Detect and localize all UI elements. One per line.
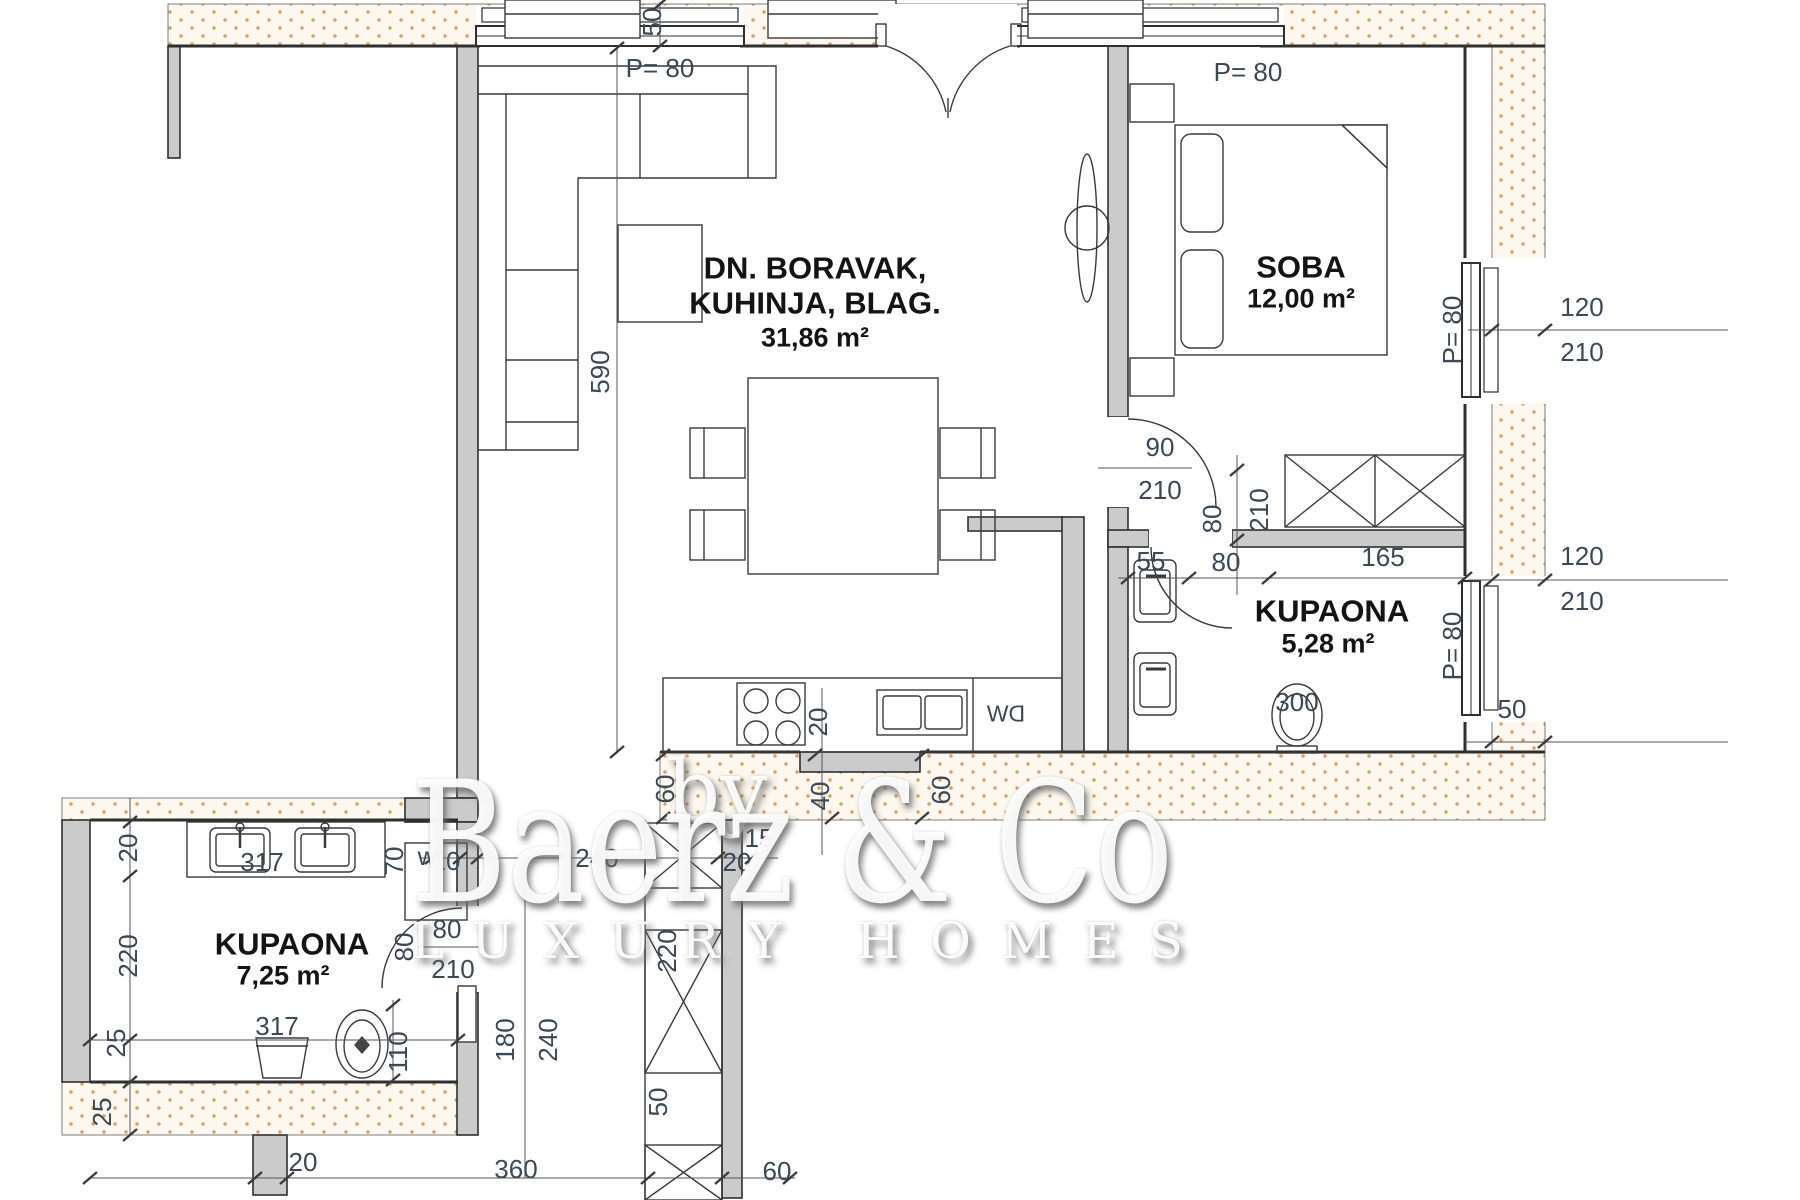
- fixture-317-toilet: 317: [255, 1013, 298, 1039]
- pillow: [1181, 134, 1223, 232]
- bed: [1175, 125, 1387, 355]
- dim-lowerdoor-80: 80: [433, 916, 462, 942]
- dim-80: 80: [1212, 549, 1241, 575]
- dim-bedroom-door-90: 90: [1146, 434, 1175, 460]
- wardrobe: [1285, 455, 1465, 527]
- dim-55: 55: [1137, 548, 1166, 574]
- room-bathmain-area: 5,28 m²: [1281, 631, 1374, 658]
- room-bathmain-name: KUPAONA: [1255, 596, 1409, 627]
- dim-parapet-soba-window: P= 80: [1439, 296, 1465, 365]
- dim-bathlower-220: 220: [115, 934, 141, 977]
- dining-chairs: [690, 428, 995, 560]
- shaft: [645, 820, 722, 1200]
- dim-parapet-living-window: P= 80: [626, 55, 695, 81]
- dim-shaft-220: 220: [654, 929, 680, 972]
- dim-bathdoor-210-rot: 210: [1246, 488, 1272, 531]
- nightstand: [1130, 358, 1174, 396]
- dim-bath-window-120: 120: [1560, 543, 1603, 569]
- furniture-living: [478, 66, 1109, 752]
- dim-180: 180: [492, 1018, 518, 1061]
- dim-room-height-590: 590: [587, 350, 613, 393]
- dim-soba-window-210: 210: [1560, 339, 1603, 365]
- dim-shaft-50: 50: [645, 1088, 671, 1117]
- tv: [1077, 154, 1097, 302]
- dim-band-60-right: 60: [928, 776, 954, 805]
- dim-hall-20: 20: [723, 849, 752, 875]
- fixture-washer-label: w: [418, 843, 437, 869]
- fixture-toilet-300: 300: [1275, 689, 1318, 715]
- room-bathlower-name: KUPAONA: [215, 929, 369, 960]
- dining-table: [748, 378, 938, 574]
- dim-bottom-20: 20: [289, 1149, 318, 1175]
- dim-band-60-left: 60: [652, 775, 678, 804]
- dim-window-depth-50: 50: [639, 8, 665, 37]
- dim-kitchen-20: 20: [805, 708, 831, 737]
- doors: [382, 4, 1232, 1042]
- laundry-basket: [256, 1038, 308, 1078]
- kitchen-sink: [877, 690, 967, 735]
- dim-parapet-bedroom-window: P= 80: [1214, 59, 1283, 85]
- dim-bath-window-210: 210: [1560, 588, 1603, 614]
- fixture-317-vanity: 317: [240, 849, 283, 875]
- dim-parapet-bath-window: P= 80: [1439, 612, 1465, 681]
- room-bedroom-area: 12,00 m²: [1247, 286, 1355, 313]
- room-living-area: 31,86 m²: [761, 325, 869, 352]
- dim-165: 165: [1361, 544, 1404, 570]
- dim-lowerdoor-80-rot: 80: [391, 933, 417, 962]
- dim-bathlower-25a: 25: [103, 1029, 129, 1058]
- nightstand: [1130, 84, 1174, 122]
- dim-lowerdoor-210: 210: [431, 956, 474, 982]
- dim-sill-50: 50: [1498, 696, 1527, 722]
- dim-bottom-360: 360: [494, 1156, 537, 1182]
- dim-bathdoor-80-rot: 80: [1199, 505, 1225, 534]
- dim-band-40: 40: [807, 782, 833, 811]
- dim-bedroom-door-210: 210: [1138, 477, 1181, 503]
- dim-bathlower-25b: 25: [89, 1098, 115, 1127]
- dim-240-vertical: 240: [535, 1018, 561, 1061]
- dim-soba-window-120: 120: [1560, 294, 1603, 320]
- room-living-line1: DN. BORAVAK,: [704, 253, 927, 284]
- dim-110: 110: [385, 1031, 411, 1072]
- floorplan-page: DN. BORAVAK, KUHINJA, BLAG. 31,86 m² SOB…: [0, 0, 1800, 1200]
- dimension-ticks: [83, 0, 1552, 1184]
- room-bathlower-area: 7,25 m²: [236, 963, 329, 990]
- room-bedroom-name: SOBA: [1256, 252, 1346, 283]
- fixture-dishwasher-label: DW: [987, 703, 1025, 726]
- terrace-stubs: [505, 0, 1143, 38]
- room-living-line2: KUHINJA, BLAG.: [689, 288, 940, 319]
- dim-bathlower-20: 20: [115, 834, 141, 863]
- dim-hall-240: 240: [575, 845, 618, 871]
- pillow: [1181, 250, 1223, 348]
- dim-70: 70: [381, 847, 407, 876]
- dim-bottom-60: 60: [763, 1158, 792, 1184]
